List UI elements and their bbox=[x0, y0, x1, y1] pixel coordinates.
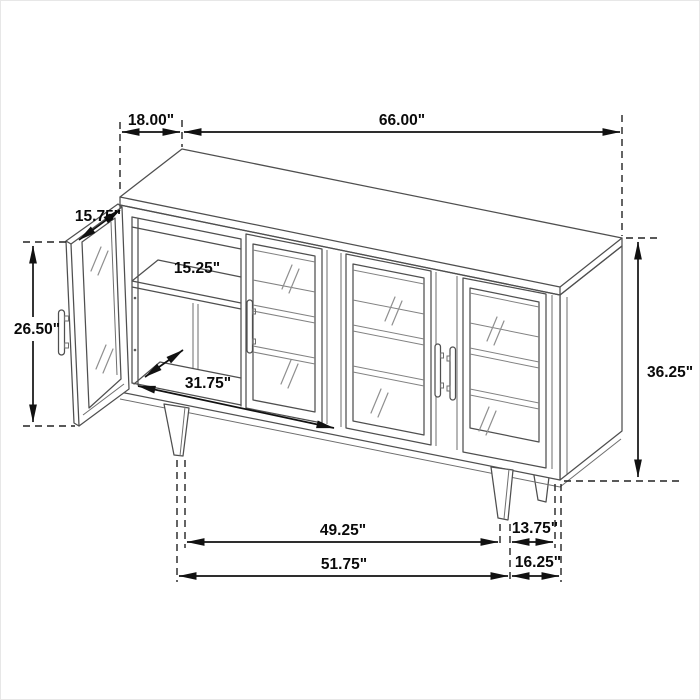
open-door bbox=[59, 204, 130, 426]
door-4 bbox=[463, 278, 546, 468]
cabinet-dimension-diagram: 18.00" 66.00" 15.75" 26.50" 15.25" 31.75… bbox=[1, 1, 700, 700]
dim-label-leg-to-edge-lower: 16.25" bbox=[515, 554, 561, 571]
shelf-pin-hole bbox=[134, 349, 137, 352]
leg-front-right bbox=[491, 467, 513, 520]
product-dimension-image: 18.00" 66.00" 15.75" 26.50" 15.25" 31.75… bbox=[0, 0, 700, 700]
dim-label-leg-to-edge-upper: 13.75" bbox=[512, 520, 558, 537]
dim-label-shelf-depth: 15.25" bbox=[174, 260, 220, 277]
dim-label-top-width: 66.00" bbox=[379, 112, 425, 129]
leg-front-left bbox=[164, 404, 189, 456]
cabinet-drawing bbox=[59, 149, 623, 520]
dim-label-leg-span-inner: 49.25" bbox=[320, 522, 366, 539]
dim-label-door-width: 15.75" bbox=[75, 208, 121, 225]
handle-door-2 bbox=[247, 300, 253, 353]
door-2 bbox=[246, 234, 322, 423]
dim-label-overall-height: 36.25" bbox=[647, 364, 693, 381]
handle-door-3 bbox=[435, 344, 441, 397]
handle-door-4 bbox=[450, 347, 456, 400]
shelf-pin-hole bbox=[134, 297, 137, 300]
dim-label-top-depth: 18.00" bbox=[128, 112, 174, 129]
dim-label-interior-width: 31.75" bbox=[185, 375, 231, 392]
dim-label-leg-span-outer: 51.75" bbox=[321, 556, 367, 573]
dim-label-door-height: 26.50" bbox=[14, 321, 60, 338]
